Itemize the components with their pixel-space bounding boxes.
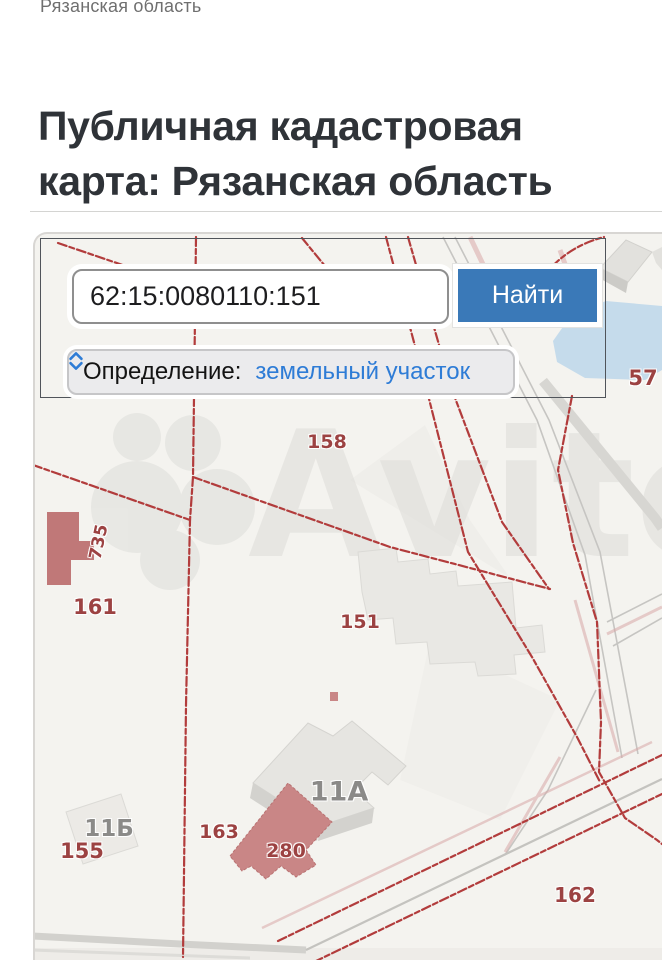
- parcel-label-158: 158: [307, 431, 347, 453]
- category-select-label: Определение:: [83, 358, 241, 386]
- category-select[interactable]: Определение: земельный участок: [67, 349, 515, 395]
- watermark-logo-circles: [91, 413, 255, 590]
- divider: [30, 211, 662, 212]
- parcel-label-161: 161: [73, 595, 117, 619]
- parcel-label-151: 151: [340, 611, 380, 633]
- cadastral-number-input[interactable]: [72, 269, 449, 324]
- find-button[interactable]: Найти: [453, 264, 602, 327]
- building-label-11a: 11А: [310, 777, 368, 808]
- category-select-value: земельный участок: [255, 358, 470, 386]
- parcel-label-163: 163: [199, 821, 239, 843]
- map-canvas[interactable]: Avito: [33, 232, 662, 960]
- building-label-11b: 11Б: [84, 816, 134, 842]
- page-title: Публичная кадастровая карта: Рязанская о…: [38, 99, 638, 207]
- map-widget: Avito: [33, 232, 662, 960]
- parcel-label-280: 280: [266, 840, 306, 862]
- parcel-label-155: 155: [60, 839, 104, 863]
- breadcrumb[interactable]: Рязанская область: [40, 0, 201, 17]
- parcel-label-162: 162: [554, 883, 596, 907]
- parcel-label-57: 57: [628, 366, 657, 390]
- watermark-text: Avito: [248, 395, 662, 598]
